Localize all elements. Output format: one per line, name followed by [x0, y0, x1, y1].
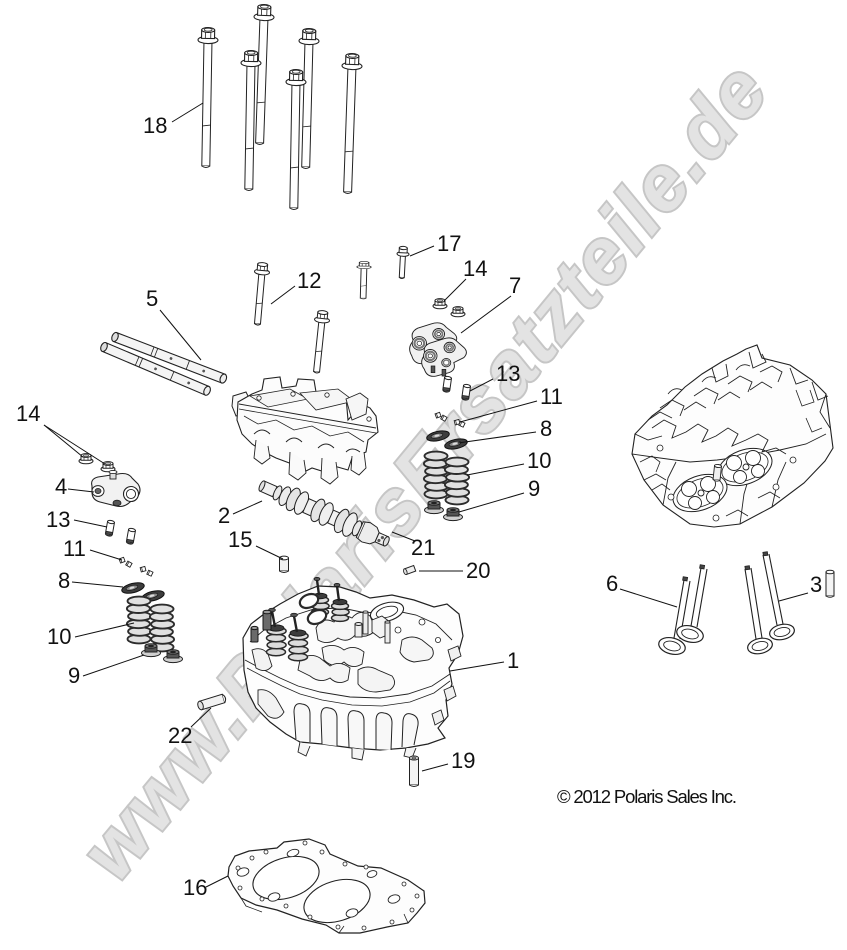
svg-text:21: 21	[411, 535, 435, 560]
svg-text:20: 20	[466, 558, 490, 583]
svg-text:9: 9	[528, 476, 540, 501]
svg-text:15: 15	[228, 527, 252, 552]
svg-text:2: 2	[218, 503, 230, 528]
svg-text:10: 10	[47, 624, 71, 649]
svg-text:9: 9	[68, 663, 80, 688]
svg-text:© 2012 Polaris Sales Inc.: © 2012 Polaris Sales Inc.	[557, 786, 737, 807]
svg-text:14: 14	[463, 256, 487, 281]
svg-text:8: 8	[540, 416, 552, 441]
svg-text:11: 11	[540, 384, 563, 409]
svg-text:11: 11	[63, 536, 86, 561]
svg-text:13: 13	[496, 361, 520, 386]
svg-text:6: 6	[606, 571, 618, 596]
svg-text:19: 19	[451, 748, 475, 773]
svg-text:13: 13	[46, 507, 70, 532]
svg-text:3: 3	[810, 572, 822, 597]
svg-text:5: 5	[146, 286, 158, 311]
svg-text:7: 7	[509, 273, 521, 298]
svg-text:17: 17	[437, 231, 461, 256]
svg-text:18: 18	[143, 113, 167, 138]
svg-text:10: 10	[527, 448, 551, 473]
svg-text:14: 14	[16, 401, 40, 426]
svg-text:22: 22	[168, 723, 192, 748]
svg-text:12: 12	[297, 268, 321, 293]
svg-text:4: 4	[55, 474, 67, 499]
svg-text:8: 8	[58, 568, 70, 593]
svg-text:16: 16	[183, 875, 207, 900]
svg-text:1: 1	[507, 648, 519, 673]
